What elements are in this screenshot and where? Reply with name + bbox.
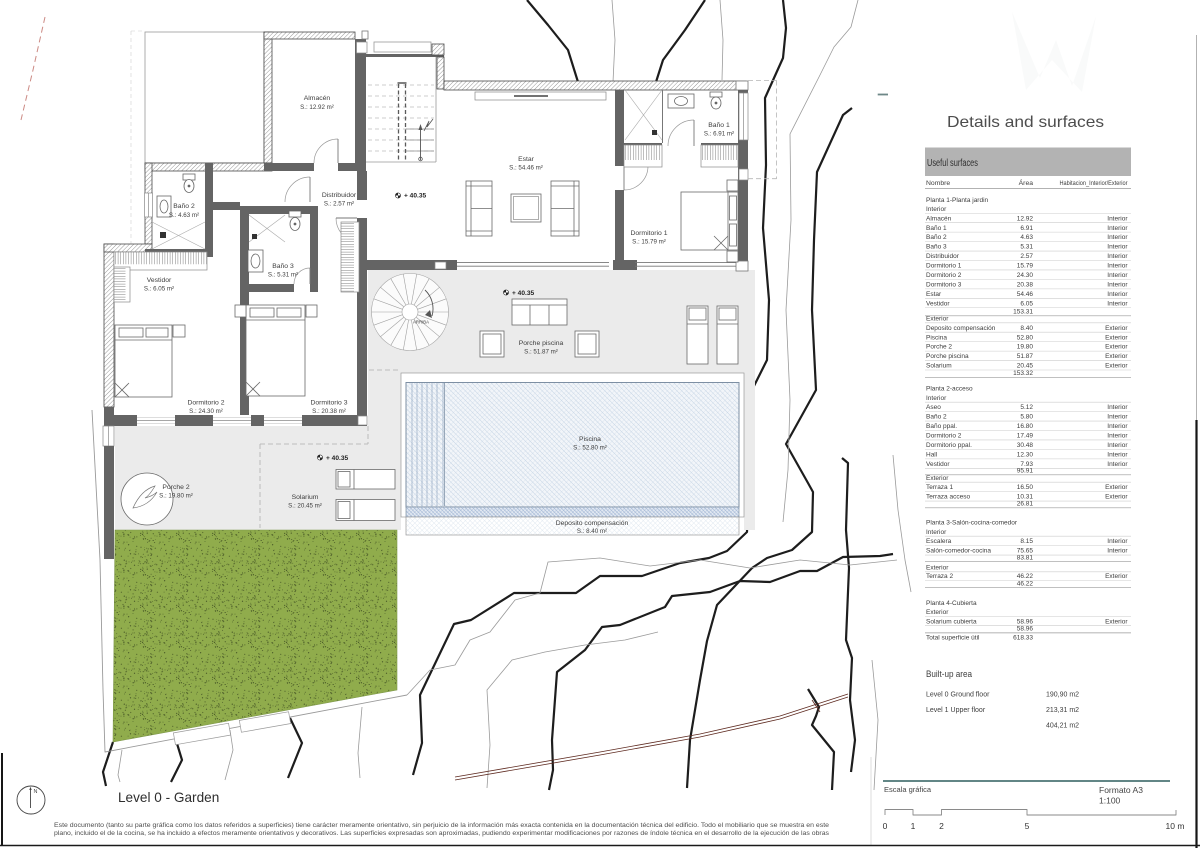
svg-text:S.: 20.38 m²: S.: 20.38 m² <box>312 408 346 415</box>
svg-text:95.91: 95.91 <box>1017 467 1034 474</box>
svg-text:Dormitorio 1: Dormitorio 1 <box>630 230 667 237</box>
svg-text:Baño ppal.: Baño ppal. <box>926 423 957 430</box>
svg-text:Almacén: Almacén <box>304 95 331 102</box>
svg-text:12.92: 12.92 <box>1017 215 1034 222</box>
svg-text:Deposito compensación: Deposito compensación <box>556 520 629 527</box>
svg-text:Habitacion_Interior/Exterior: Habitacion_Interior/Exterior <box>1060 180 1129 187</box>
svg-text:1: 1 <box>911 821 916 831</box>
svg-text:+ 40.35: + 40.35 <box>326 455 349 462</box>
svg-text:S.: 5.31 m²: S.: 5.31 m² <box>268 272 298 279</box>
svg-text:Estar: Estar <box>926 291 942 298</box>
svg-text:Formato A3: Formato A3 <box>1099 785 1143 795</box>
svg-text:Este documento (tanto su parte: Este documento (tanto su parte gráfica c… <box>54 822 830 829</box>
svg-text:8.15: 8.15 <box>1020 538 1033 545</box>
svg-text:20.45: 20.45 <box>1017 363 1034 370</box>
svg-text:Interior: Interior <box>1107 234 1128 241</box>
svg-text:Dormitorio 2: Dormitorio 2 <box>926 433 962 440</box>
svg-text:Área: Área <box>1019 178 1034 187</box>
svg-text:S.: 51.87 m²: S.: 51.87 m² <box>524 349 558 356</box>
svg-text:Porche 2: Porche 2 <box>162 484 189 491</box>
svg-text:Interior: Interior <box>1107 215 1128 222</box>
svg-text:30.48: 30.48 <box>1017 442 1034 449</box>
svg-text:0: 0 <box>883 821 888 831</box>
svg-text:Interior: Interior <box>926 206 947 213</box>
svg-text:Interior: Interior <box>1107 423 1128 430</box>
svg-text:190,90 m2: 190,90 m2 <box>1046 692 1079 699</box>
svg-text:+ 40.35: + 40.35 <box>404 193 427 200</box>
svg-text:58.96: 58.96 <box>1017 618 1034 625</box>
svg-text:Baño 3: Baño 3 <box>272 263 294 270</box>
svg-text:Dormitorio 3: Dormitorio 3 <box>310 400 347 407</box>
svg-text:Distribuidor: Distribuidor <box>926 253 960 260</box>
svg-text:S.: 24.30 m²: S.: 24.30 m² <box>189 408 223 415</box>
svg-text:Baño 2: Baño 2 <box>173 203 195 210</box>
svg-text:404,21 m2: 404,21 m2 <box>1046 723 1079 730</box>
svg-text:N: N <box>34 789 38 795</box>
svg-text:Interior: Interior <box>926 395 947 402</box>
svg-text:Solarium: Solarium <box>292 494 319 501</box>
svg-text:Planta 4-Cubierta: Planta 4-Cubierta <box>926 600 977 607</box>
svg-text:Baño 1: Baño 1 <box>708 122 730 129</box>
svg-text:Nombre: Nombre <box>926 180 950 187</box>
svg-text:Baño 2: Baño 2 <box>926 234 947 241</box>
svg-text:Baño 2: Baño 2 <box>926 414 947 421</box>
svg-text:Dormitorio 2: Dormitorio 2 <box>926 272 962 279</box>
svg-text:Interior: Interior <box>926 529 947 536</box>
svg-text:ARRIBA: ARRIBA <box>413 320 429 325</box>
svg-text:Escala gráfica: Escala gráfica <box>884 785 932 794</box>
svg-text:Dormitorio 2: Dormitorio 2 <box>187 400 224 407</box>
svg-text:Dormitorio 1: Dormitorio 1 <box>926 263 962 270</box>
svg-text:S.: 19.80 m²: S.: 19.80 m² <box>159 493 193 500</box>
svg-text:S.: 6.05 m²: S.: 6.05 m² <box>144 286 174 293</box>
svg-text:S.: 54.46 m²: S.: 54.46 m² <box>509 165 543 172</box>
svg-text:Hall: Hall <box>926 451 938 458</box>
svg-text:Porche piscina: Porche piscina <box>519 340 564 347</box>
svg-text:10 m: 10 m <box>1166 821 1185 831</box>
svg-text:20.38: 20.38 <box>1017 281 1034 288</box>
svg-text:Aseo: Aseo <box>926 404 941 411</box>
svg-text:Interior: Interior <box>1107 451 1128 458</box>
svg-text:Vestidor: Vestidor <box>926 300 950 307</box>
svg-text:2: 2 <box>939 821 944 831</box>
svg-text:Exterior: Exterior <box>926 609 949 616</box>
svg-text:Interior: Interior <box>1107 263 1128 270</box>
svg-text:Interior: Interior <box>1107 404 1128 411</box>
svg-text:Total superficie útil: Total superficie útil <box>926 635 980 642</box>
svg-text:Exterior: Exterior <box>1105 344 1128 351</box>
svg-text:Planta 1-Planta jardin: Planta 1-Planta jardin <box>926 197 989 204</box>
svg-text:Details and surfaces: Details and surfaces <box>947 114 1104 131</box>
svg-text:Baño 3: Baño 3 <box>926 244 947 251</box>
svg-text:83.81: 83.81 <box>1017 554 1034 561</box>
svg-text:46.22: 46.22 <box>1017 573 1034 580</box>
svg-text:5.12: 5.12 <box>1020 404 1033 411</box>
svg-text:Exterior: Exterior <box>1105 494 1128 501</box>
svg-text:Planta 3-Salón-cocina-comedor: Planta 3-Salón-cocina-comedor <box>926 520 1018 527</box>
svg-text:6.91: 6.91 <box>1020 225 1033 232</box>
svg-text:Deposito compensación: Deposito compensación <box>926 325 996 332</box>
svg-text:plano, incluido el de la cocin: plano, incluido el de la cocina, se ha i… <box>54 830 829 837</box>
svg-text:Exterior: Exterior <box>926 564 949 571</box>
svg-text:51.87: 51.87 <box>1017 353 1034 360</box>
svg-text:Dormitorio ppal.: Dormitorio ppal. <box>926 442 972 449</box>
svg-text:5.31: 5.31 <box>1020 244 1033 251</box>
svg-text:Exterior: Exterior <box>1105 573 1128 580</box>
svg-text:Level 0 Ground floor: Level 0 Ground floor <box>926 692 990 699</box>
svg-text:Solarium cubierta: Solarium cubierta <box>926 618 977 625</box>
svg-text:Exterior: Exterior <box>1105 325 1128 332</box>
svg-text:Interior: Interior <box>1107 442 1128 449</box>
svg-text:Interior: Interior <box>1107 291 1128 298</box>
svg-text:Vestidor: Vestidor <box>926 461 950 468</box>
svg-text:Porche 2: Porche 2 <box>926 344 952 351</box>
svg-text:5: 5 <box>1025 821 1030 831</box>
svg-text:58.96: 58.96 <box>1017 626 1034 633</box>
svg-text:Terraza 1: Terraza 1 <box>926 484 953 491</box>
svg-text:Almacén: Almacén <box>926 215 952 222</box>
svg-text:618.33: 618.33 <box>1013 635 1033 642</box>
svg-text:26.81: 26.81 <box>1017 500 1034 507</box>
svg-text:Estar: Estar <box>518 156 535 163</box>
svg-text:12.30: 12.30 <box>1017 451 1034 458</box>
svg-text:Distribuidor: Distribuidor <box>322 192 357 199</box>
svg-text:Interior: Interior <box>1107 300 1128 307</box>
svg-text:24.30: 24.30 <box>1017 272 1034 279</box>
svg-text:Interior: Interior <box>1107 253 1128 260</box>
svg-text:Interior: Interior <box>1107 433 1128 440</box>
svg-text:17.49: 17.49 <box>1017 433 1034 440</box>
svg-text:Salón-comedor-cocina: Salón-comedor-cocina <box>926 548 991 555</box>
svg-text:213,31 m2: 213,31 m2 <box>1046 707 1079 714</box>
svg-text:16.50: 16.50 <box>1017 484 1034 491</box>
svg-text:1:100: 1:100 <box>1099 796 1121 806</box>
svg-text:Vestidor: Vestidor <box>147 277 172 284</box>
svg-text:Exterior: Exterior <box>1105 618 1128 625</box>
svg-text:Terraza acceso: Terraza acceso <box>926 494 970 501</box>
svg-text:Piscina: Piscina <box>579 436 601 443</box>
svg-text:Level 1 Upper floor: Level 1 Upper floor <box>926 707 986 714</box>
svg-text:S.: 52.80 m²: S.: 52.80 m² <box>573 445 607 452</box>
svg-text:Interior: Interior <box>1107 272 1128 279</box>
svg-text:Exterior: Exterior <box>1105 334 1128 341</box>
svg-text:Exterior: Exterior <box>1105 484 1128 491</box>
svg-text:16.80: 16.80 <box>1017 423 1034 430</box>
svg-text:Solarium: Solarium <box>926 363 952 370</box>
svg-text:S.: 20.45 m²: S.: 20.45 m² <box>288 503 322 510</box>
svg-text:4.63: 4.63 <box>1020 234 1033 241</box>
svg-text:Piscina: Piscina <box>926 334 947 341</box>
svg-text:S.: 15.79 m²: S.: 15.79 m² <box>632 239 666 246</box>
svg-text:Interior: Interior <box>1107 538 1128 545</box>
svg-text:Exterior: Exterior <box>926 315 949 322</box>
svg-text:Interior: Interior <box>1107 244 1128 251</box>
svg-text:Interior: Interior <box>1107 225 1128 232</box>
svg-text:Escalera: Escalera <box>926 538 952 545</box>
svg-text:Baño 1: Baño 1 <box>926 225 947 232</box>
svg-text:S.: 6.91 m²: S.: 6.91 m² <box>704 131 734 138</box>
svg-text:2.57: 2.57 <box>1020 253 1033 260</box>
svg-text:Level 0 - Garden: Level 0 - Garden <box>118 790 219 805</box>
svg-text:S.: 2.57 m²: S.: 2.57 m² <box>324 201 354 208</box>
svg-text:46.22: 46.22 <box>1017 580 1034 587</box>
svg-text:Interior: Interior <box>1107 281 1128 288</box>
svg-text:S.: 4.63 m²: S.: 4.63 m² <box>169 212 199 219</box>
svg-text:6.05: 6.05 <box>1020 300 1033 307</box>
svg-text:S.: 8.40 m²: S.: 8.40 m² <box>577 528 607 535</box>
svg-text:15.79: 15.79 <box>1017 263 1034 270</box>
svg-text:Terraza 2: Terraza 2 <box>926 573 953 580</box>
svg-text:153.32: 153.32 <box>1013 370 1033 377</box>
svg-text:5.80: 5.80 <box>1020 414 1033 421</box>
svg-text:Porche piscina: Porche piscina <box>926 353 969 360</box>
svg-text:54.46: 54.46 <box>1017 291 1034 298</box>
svg-text:Interior: Interior <box>1107 548 1128 555</box>
svg-text:Exterior: Exterior <box>1105 353 1128 360</box>
svg-text:8.40: 8.40 <box>1020 325 1033 332</box>
svg-text:S.: 12.92 m²: S.: 12.92 m² <box>300 104 334 111</box>
svg-text:Exterior: Exterior <box>1105 363 1128 370</box>
svg-text:Planta 2-acceso: Planta 2-acceso <box>926 385 973 392</box>
svg-text:+ 40.35: + 40.35 <box>512 290 535 297</box>
svg-text:Dormitorio 3: Dormitorio 3 <box>926 281 962 288</box>
svg-text:52.80: 52.80 <box>1017 334 1034 341</box>
svg-text:Exterior: Exterior <box>926 475 949 482</box>
svg-text:Useful surfaces: Useful surfaces <box>927 158 978 169</box>
svg-text:153.31: 153.31 <box>1013 308 1033 315</box>
svg-text:19.80: 19.80 <box>1017 344 1034 351</box>
svg-text:Built-up area: Built-up area <box>926 669 973 680</box>
svg-text:Interior: Interior <box>1107 461 1128 468</box>
svg-text:Interior: Interior <box>1107 414 1128 421</box>
